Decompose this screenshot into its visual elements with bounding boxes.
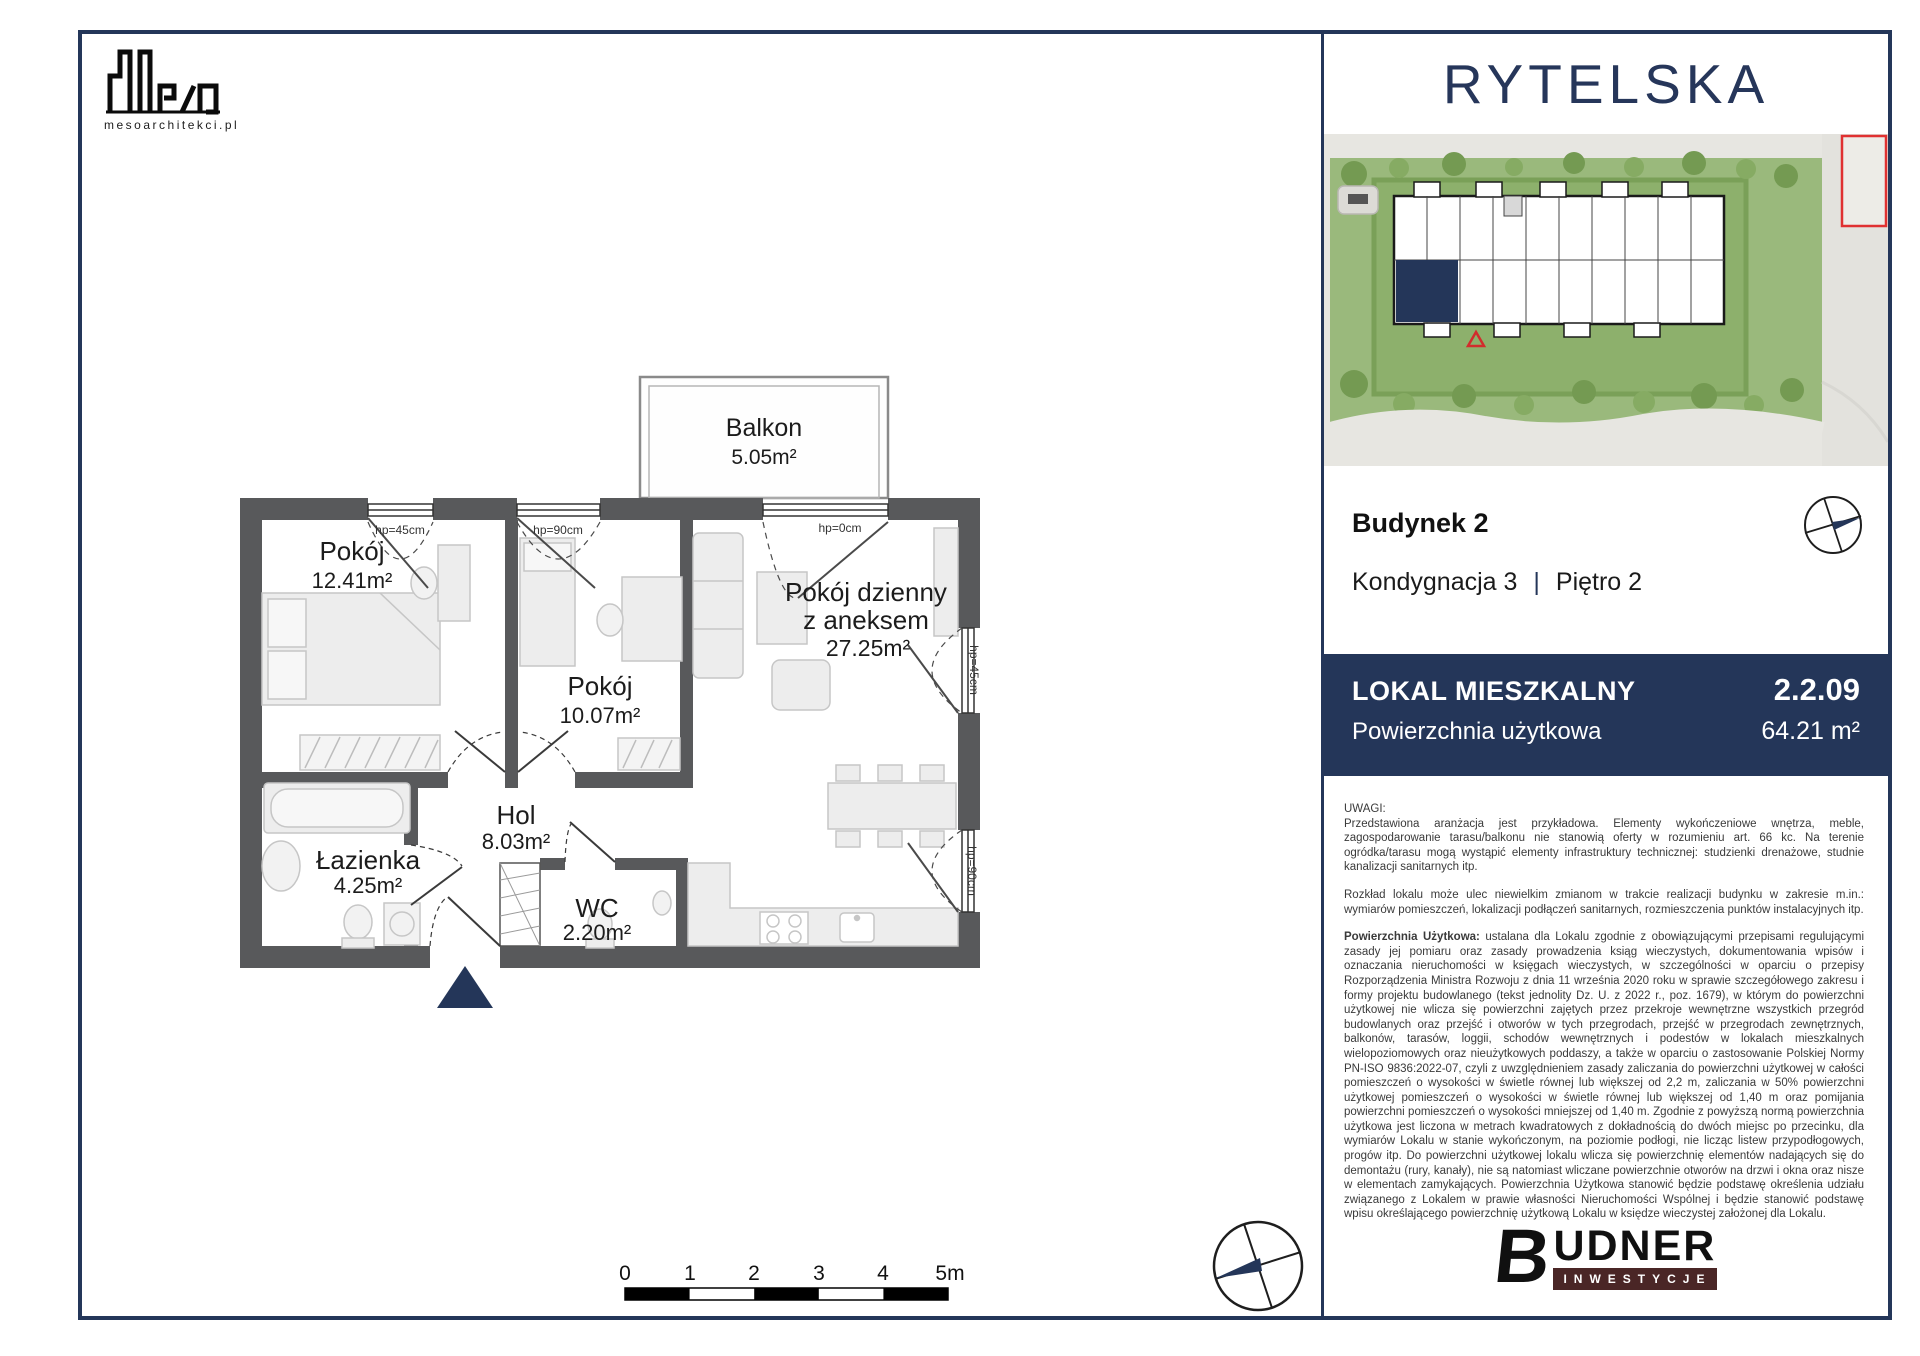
window-label-4: hp=45cm [967,645,981,695]
site-highlighted-unit [1396,260,1458,322]
developer-subtitle: INWESTYCJE [1553,1268,1717,1290]
scale-tick-5: 5m [935,1262,964,1285]
entrance-arrow-icon [437,966,493,1008]
installation-shaft [500,863,540,946]
unit-info-section: Budynek 2 Kondygnacja 3|Piętro 2 [1324,466,1888,654]
room-area-pokoj-2: 10.07m² [560,703,641,728]
room-area-wc: 2.20m² [563,920,631,945]
room-area-balkon: 5.05m² [731,446,796,469]
notes-paragraph-3: Powierzchnia Użytkowa: ustalana dla Loka… [1344,930,1864,1222]
scale-tick-4: 4 [877,1262,889,1285]
scale-bar: 0 1 2 3 4 5m [619,1262,964,1300]
room-area-pokoj-1: 12.41m² [312,568,393,593]
notes-paragraph-2: Rozkład lokalu może ulec niewielkim zmia… [1344,888,1864,917]
scale-tick-0: 0 [619,1262,631,1285]
room-label-balkon: Balkon [726,414,802,442]
window-label-2: hp=90cm [533,523,583,537]
developer-logo-b: B [1491,1226,1552,1288]
unit-area-value: 64.21 m² [1761,717,1860,746]
unit-area-label: Powierzchnia użytkowa [1352,718,1601,746]
room-label-pokoj-2: Pokój [567,671,632,701]
notes-section: UWAGI: Przedstawiona aranżacja jest przy… [1324,776,1888,1235]
room-area-living: 27.25m² [826,635,911,661]
notes-paragraph-3-body: ustalana dla Lokalu zgodnie z obowiązują… [1344,931,1864,1220]
north-compass-icon [1214,1222,1302,1310]
room-label-hol: Hol [496,800,535,830]
scale-tick-2: 2 [748,1262,760,1285]
developer-logo: B UDNER INWESTYCJE [1324,1226,1888,1290]
room-area-hol: 8.03m² [482,829,550,854]
floorplan-sheet: mesoarchitekci.pl [0,0,1920,1356]
room-label-living: Pokój dzienny [785,577,947,607]
room-label-living-2: z aneksem [803,605,929,635]
unit-number: 2.2.09 [1774,672,1860,708]
building-name: Budynek 2 [1352,508,1489,539]
site-red-outline [1842,136,1886,226]
notes-paragraph-1: Przedstawiona aranżacja jest przykładowa… [1344,817,1864,875]
window-label-5: hp=90cm [965,846,979,896]
pipe-divider: | [1533,568,1540,596]
developer-name: UDNER [1553,1226,1717,1266]
room-label-pokoj-1: Pokój [319,536,384,566]
notes-paragraph-3-lead: Powierzchnia Użytkowa: [1344,931,1480,943]
window-label-3: hp=0cm [818,521,861,535]
storey-label: Kondygnacja 3 [1352,568,1517,596]
window-label-1: hp=45cm [375,523,425,537]
unit-type-label: LOKAL MIESZKALNY [1352,676,1636,707]
scale-tick-3: 3 [813,1262,825,1285]
floor-plan: Pokój 12.41m² Pokój 10.07m² Pokój dzienn… [78,30,1321,1320]
room-area-lazienka: 4.25m² [334,873,402,898]
site-plan [1324,134,1888,466]
notes-heading: UWAGI: [1344,802,1864,817]
floor-row: Kondygnacja 3|Piętro 2 [1352,568,1642,597]
floor-label: Piętro 2 [1556,568,1642,596]
room-label-wc: WC [575,893,618,923]
development-logo: RYTELSKA [1324,34,1888,134]
compass-small-icon [1802,494,1864,556]
room-label-lazienka: Łazienka [316,845,421,875]
site-building [1394,182,1724,346]
unit-band: LOKAL MIESZKALNY 2.2.09 Powierzchnia uży… [1324,654,1888,776]
site-path [1324,421,1822,436]
scale-tick-1: 1 [684,1262,696,1285]
